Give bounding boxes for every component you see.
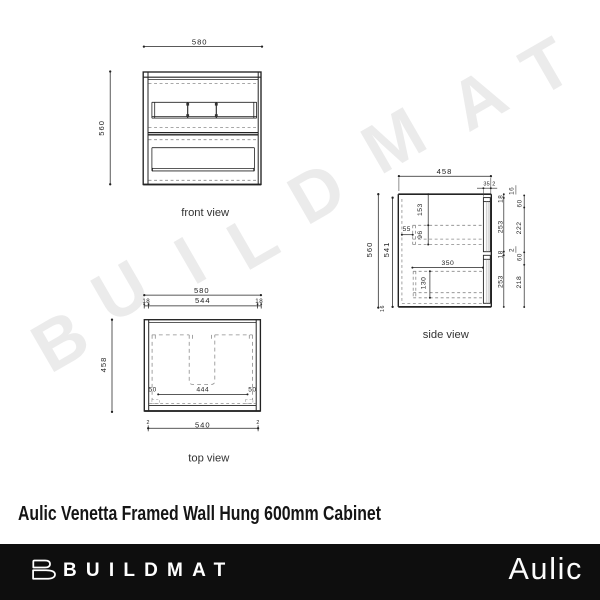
svg-text:560: 560 [365,242,374,258]
svg-text:U: U [79,245,162,338]
svg-text:580: 580 [192,37,208,46]
svg-text:M: M [349,92,439,189]
svg-text:580: 580 [194,286,210,295]
svg-text:444: 444 [196,387,209,394]
svg-text:2: 2 [509,248,516,252]
svg-text:541: 541 [382,242,391,258]
svg-text:top view: top view [188,452,230,464]
svg-text:544: 544 [195,296,211,305]
svg-text:218: 218 [516,276,523,289]
svg-text:130: 130 [420,277,427,290]
svg-text:side view: side view [423,329,470,341]
svg-text:153: 153 [417,203,424,216]
svg-text:2: 2 [146,420,149,426]
svg-text:540: 540 [195,420,211,429]
svg-text:18: 18 [255,298,263,305]
svg-text:55: 55 [403,226,411,233]
svg-text:T: T [508,22,584,111]
svg-text:A: A [437,53,520,146]
svg-text:front view: front view [181,207,230,219]
svg-text:50: 50 [148,387,156,394]
svg-text:2: 2 [256,420,259,426]
svg-text:458: 458 [437,167,453,176]
svg-text:222: 222 [516,221,523,234]
svg-text:2: 2 [492,182,495,188]
svg-text:350: 350 [441,260,454,267]
svg-text:50: 50 [248,387,256,394]
svg-text:18: 18 [497,195,504,203]
svg-text:96: 96 [417,230,424,239]
svg-text:B: B [19,295,102,388]
svg-text:16: 16 [509,187,516,195]
svg-text:18: 18 [497,250,504,258]
svg-text:253: 253 [497,275,504,288]
svg-text:253: 253 [497,220,504,233]
svg-text:D: D [275,147,358,240]
svg-text:60: 60 [517,199,524,207]
svg-text:560: 560 [97,120,106,136]
svg-text:35: 35 [483,182,490,188]
svg-text:60: 60 [517,253,524,261]
svg-text:18: 18 [142,298,150,305]
svg-text:458: 458 [99,357,108,373]
svg-text:16: 16 [380,305,386,312]
